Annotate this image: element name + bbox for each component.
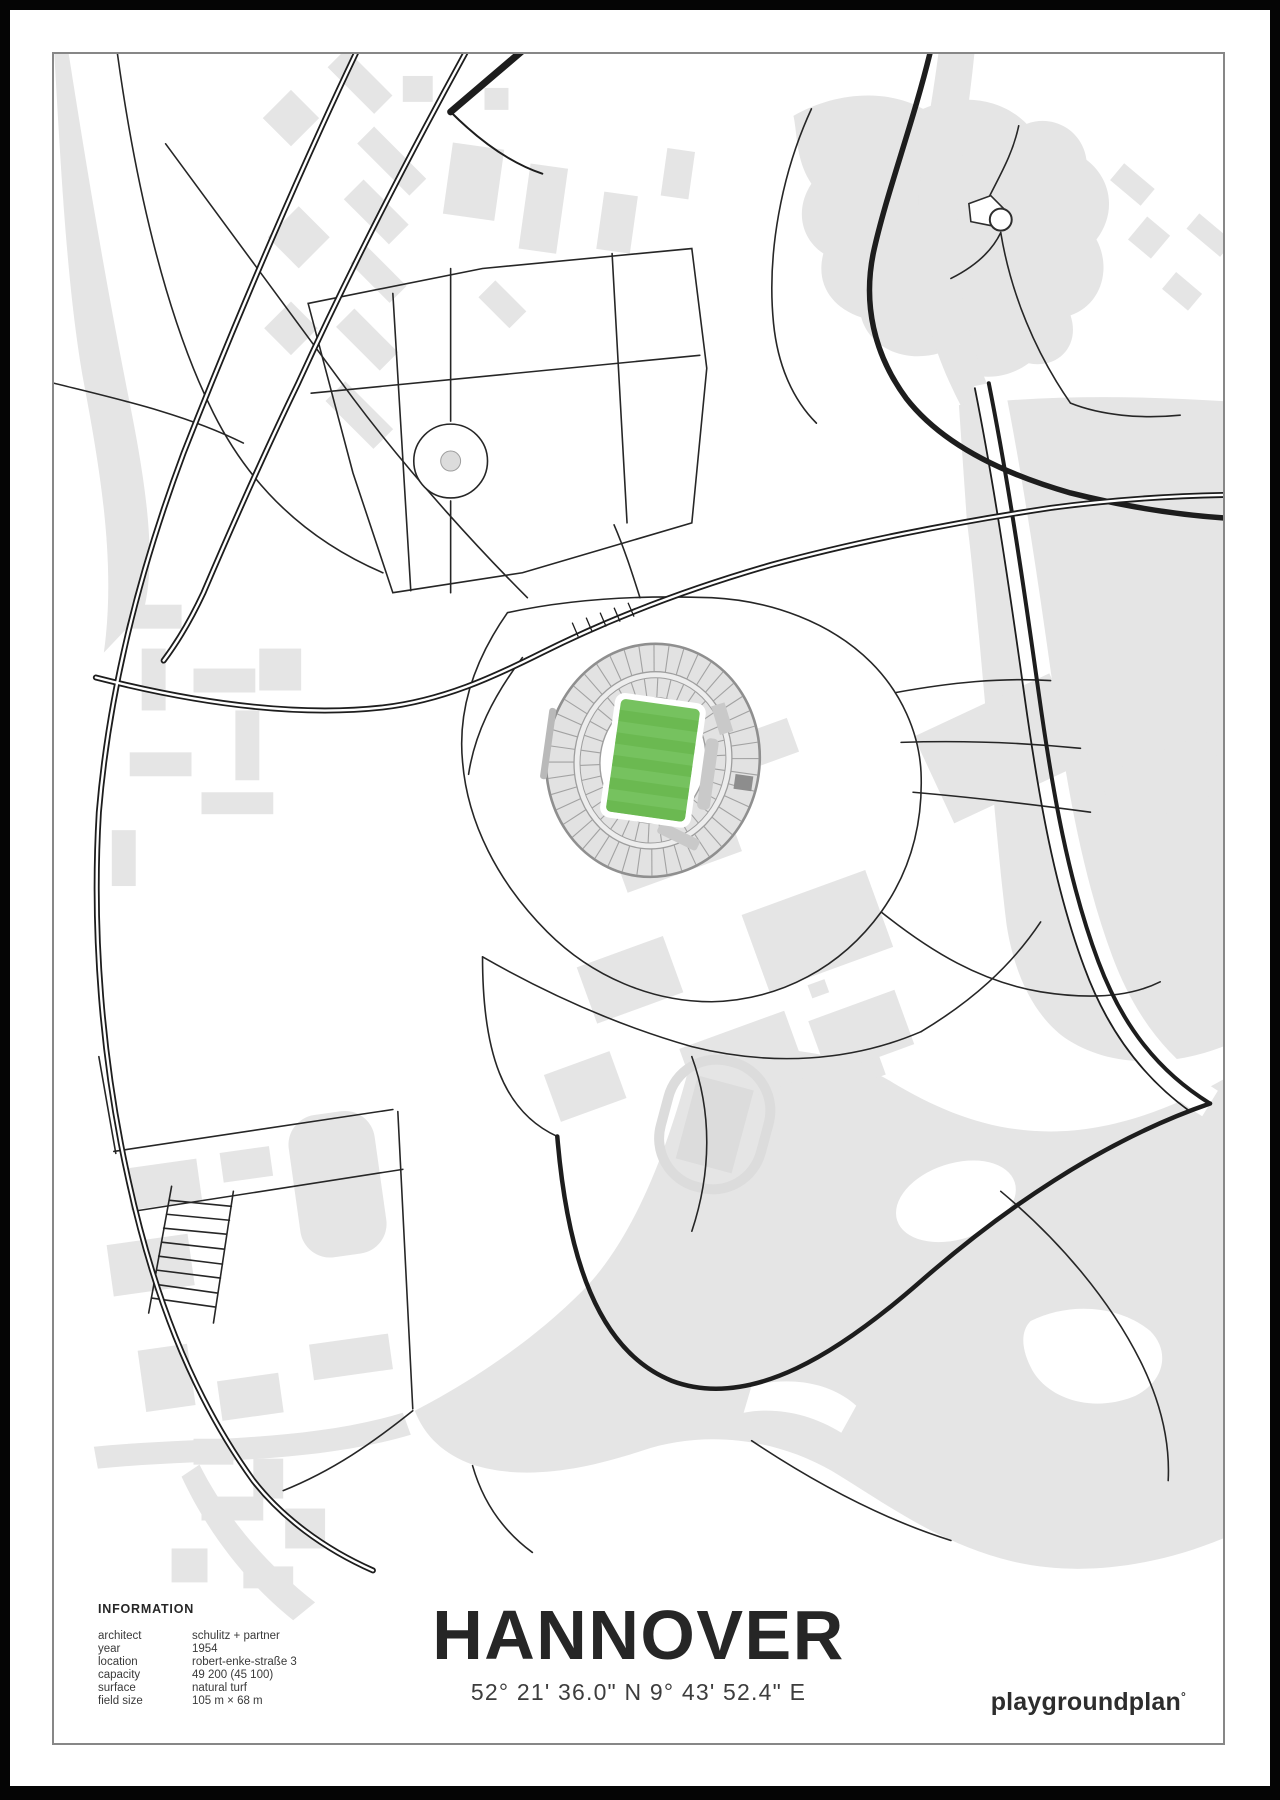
city-map-svg [54, 54, 1223, 1743]
stadium-portal [733, 774, 753, 791]
poster: INFORMATION architect schulitz + partner… [10, 10, 1270, 1786]
info-block: INFORMATION architect schulitz + partner… [98, 1602, 297, 1708]
brand-logo: playgroundplan° [991, 1688, 1186, 1717]
info-row-capacity: capacity 49 200 (45 100) [98, 1669, 297, 1682]
poster-page: INFORMATION architect schulitz + partner… [0, 0, 1280, 1800]
stadium-pitch [599, 692, 707, 829]
info-heading: INFORMATION [98, 1602, 297, 1616]
info-row-architect: architect schulitz + partner [98, 1630, 297, 1643]
info-row-surface: surface natural turf [98, 1682, 297, 1695]
info-row-year: year 1954 [98, 1643, 297, 1656]
info-rows: architect schulitz + partner year 1954 l… [98, 1630, 297, 1708]
info-row-field-size: field size 105 m × 68 m [98, 1695, 297, 1708]
info-row-location: location robert-enke-straße 3 [98, 1656, 297, 1669]
map-frame: INFORMATION architect schulitz + partner… [52, 52, 1225, 1745]
brand-mark: ° [1181, 1690, 1186, 1704]
map-roundabout [414, 424, 488, 498]
